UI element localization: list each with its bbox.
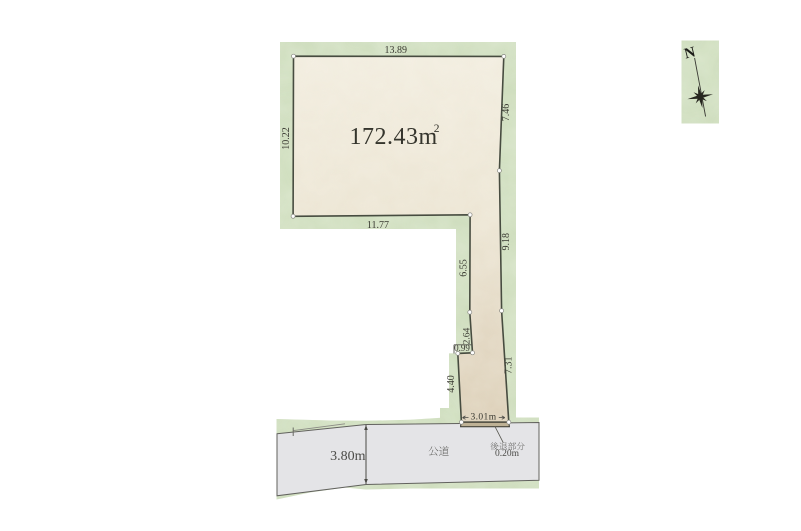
svg-text:7.31: 7.31 <box>504 356 515 374</box>
svg-text:4.40: 4.40 <box>446 375 457 393</box>
svg-text:3.01m: 3.01m <box>470 413 496 423</box>
svg-text:172.43m: 172.43m <box>350 124 438 150</box>
svg-text:11.77: 11.77 <box>367 220 389 231</box>
svg-text:2.64: 2.64 <box>462 327 472 344</box>
svg-text:2: 2 <box>434 123 440 135</box>
svg-text:0.20m: 0.20m <box>495 449 520 459</box>
svg-text:9.18: 9.18 <box>501 233 512 251</box>
svg-text:7.46: 7.46 <box>501 104 512 122</box>
svg-text:13.89: 13.89 <box>385 45 408 56</box>
svg-text:3.80m: 3.80m <box>330 449 366 464</box>
svg-text:6.55: 6.55 <box>459 259 470 277</box>
svg-text:10.22: 10.22 <box>281 127 292 150</box>
svg-text:0.99: 0.99 <box>454 343 470 353</box>
